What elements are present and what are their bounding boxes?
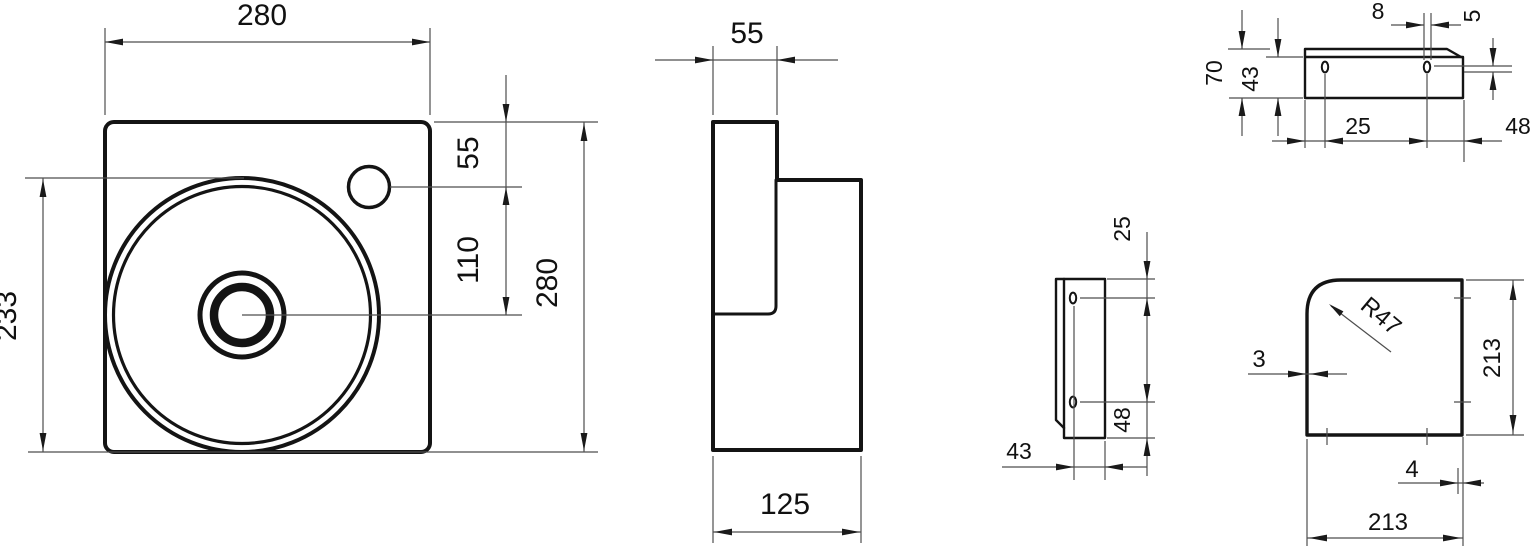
bracket-body (1305, 57, 1463, 98)
faucet-hole (349, 167, 390, 208)
arrowhead (1310, 371, 1328, 378)
arrowhead (581, 123, 588, 141)
arrowhead (503, 104, 510, 122)
dim-rail-height-body: 43 (1237, 66, 1263, 92)
dim-plan-side-right: 213 (1479, 338, 1506, 378)
dim-front-width: 280 (237, 0, 287, 32)
arrowhead (1406, 22, 1424, 29)
dim-rail-side-width: 43 (1006, 438, 1032, 464)
arrowhead (105, 39, 123, 46)
arrowhead (1275, 39, 1282, 57)
bracket-slot-right (1424, 62, 1430, 73)
dim-plan-rim-offset: 4 (1405, 456, 1418, 483)
arrowhead (1287, 138, 1305, 145)
bracket-slot-top (1070, 293, 1076, 304)
arrowhead (40, 433, 47, 451)
bracket-side-view: 25 48 43 (1002, 216, 1155, 480)
arrowhead (1239, 98, 1246, 116)
dim-top-to-faucet: 55 (452, 136, 485, 169)
bracket-slot-left (1322, 62, 1328, 73)
arrowhead (1490, 48, 1497, 66)
dim-faucet-to-drain: 110 (452, 236, 485, 284)
dim-rail-slot-to-edge: 48 (1505, 113, 1531, 139)
arrowhead (714, 529, 732, 536)
bracket-slot-bottom (1070, 397, 1076, 408)
arrowhead (1510, 415, 1517, 433)
side-profile-outline (713, 122, 861, 450)
arrowhead (1144, 384, 1151, 402)
arrowhead (1490, 72, 1497, 90)
front-view: 280 233 55 110 280 (0, 0, 598, 452)
arrowhead (777, 57, 795, 64)
arrowhead (503, 297, 510, 315)
dim-side-depth-top: 55 (730, 17, 763, 50)
dim-plan-side-bottom: 213 (1368, 509, 1408, 536)
dim-front-height-right: 280 (531, 258, 564, 308)
arrowhead (695, 57, 713, 64)
plan-view: R47 3 213 4 213 (1248, 280, 1524, 546)
arrowhead (1239, 31, 1246, 49)
arrowhead (1464, 138, 1482, 145)
arrowhead (842, 529, 860, 536)
arrowhead (1443, 535, 1461, 542)
dim-rail-slot-width: 8 (1372, 0, 1385, 24)
dim-side-depth-total: 125 (760, 488, 810, 521)
arrowhead (1144, 298, 1151, 316)
dim-front-height-left: 233 (0, 291, 23, 341)
arrowhead (40, 179, 47, 197)
arrowhead (1431, 22, 1449, 29)
arrowhead (1309, 535, 1327, 542)
arrowhead (1325, 138, 1343, 145)
dim-rail-side-slot-to-edge: 48 (1109, 407, 1135, 433)
arrowhead (1056, 464, 1074, 471)
arrowhead (1144, 438, 1151, 456)
side-profile-inner-edge (713, 180, 776, 314)
bracket-front-view: 8 5 70 43 25 48 (1201, 0, 1531, 162)
dim-plan-wall-thickness: 3 (1252, 346, 1265, 373)
technical-drawing: 280 233 55 110 280 55 125 (0, 0, 1536, 546)
arrowhead (1510, 282, 1517, 300)
dim-rail-lip-offset: 5 (1459, 10, 1485, 23)
dim-plan-corner-radius: R47 (1355, 292, 1406, 341)
dim-rail-edge-to-slot: 25 (1345, 113, 1371, 139)
arrowhead (581, 433, 588, 451)
side-view: 55 125 (655, 17, 861, 543)
bracket-side-body (1064, 279, 1105, 438)
arrowhead (1144, 261, 1151, 279)
arrowhead (1275, 98, 1282, 116)
arrowhead (1409, 138, 1427, 145)
drawing-svg: 280 233 55 110 280 55 125 (0, 0, 1536, 546)
arrowhead (1105, 464, 1123, 471)
arrowhead (503, 187, 510, 205)
arrowhead (1463, 480, 1481, 487)
arrowhead (1440, 480, 1458, 487)
dim-rail-side-edge-to-slot: 25 (1109, 216, 1135, 242)
arrowhead (412, 39, 430, 46)
arrowhead (1288, 371, 1306, 378)
dim-rail-height-total: 70 (1201, 60, 1227, 86)
